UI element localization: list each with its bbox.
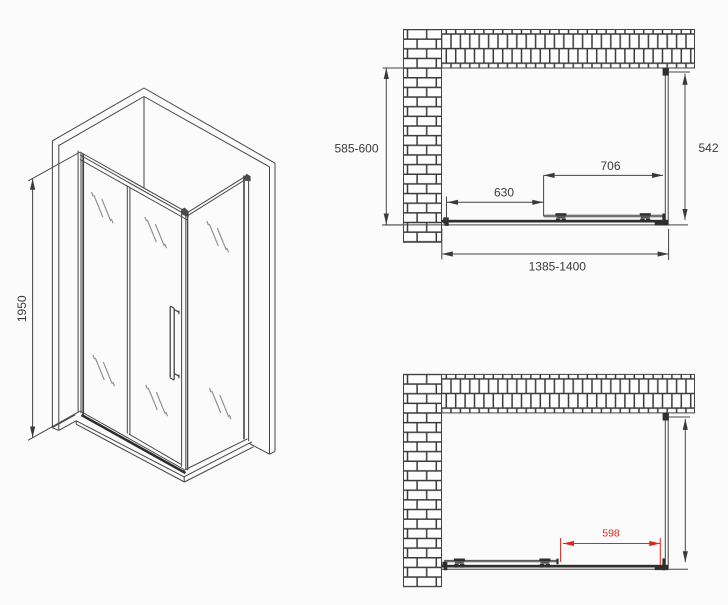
svg-text:706: 706	[600, 159, 620, 173]
svg-text:598: 598	[602, 528, 620, 540]
svg-text:542: 542	[698, 141, 718, 155]
svg-text:1385-1400: 1385-1400	[529, 260, 587, 274]
svg-text:585-600: 585-600	[334, 141, 378, 155]
svg-text:630: 630	[494, 186, 514, 200]
svg-text:1950: 1950	[15, 295, 29, 322]
